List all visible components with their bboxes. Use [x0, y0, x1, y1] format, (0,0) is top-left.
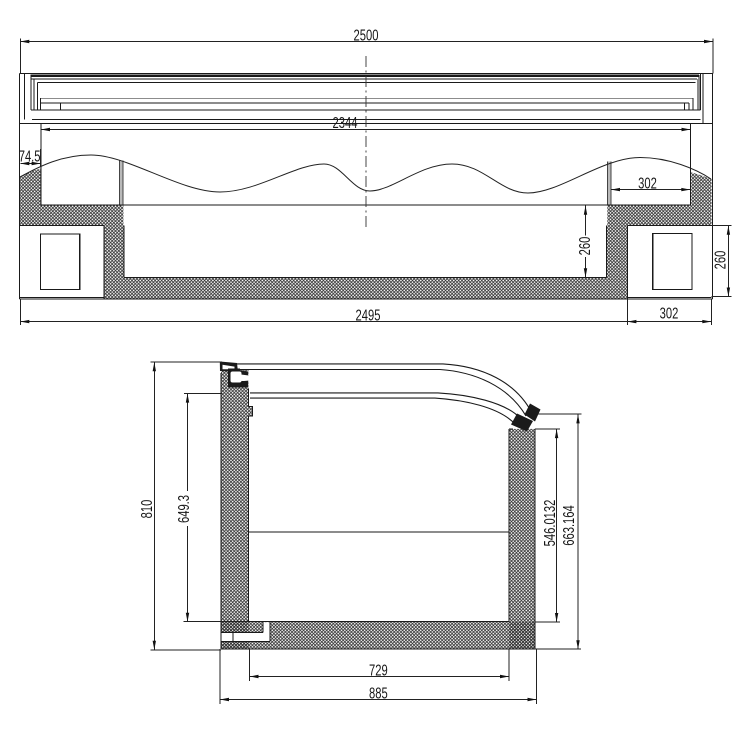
svg-text:663.164: 663.164 [559, 505, 578, 546]
svg-text:885: 885 [369, 683, 388, 702]
svg-text:2344: 2344 [333, 113, 358, 132]
svg-text:2500: 2500 [354, 26, 379, 45]
svg-text:546.0132: 546.0132 [540, 500, 559, 547]
svg-text:260: 260 [575, 236, 594, 255]
svg-text:729: 729 [369, 660, 388, 679]
svg-text:649.3: 649.3 [174, 495, 193, 523]
svg-text:302: 302 [638, 173, 657, 192]
svg-text:2495: 2495 [356, 305, 381, 324]
svg-text:74.5: 74.5 [19, 146, 41, 165]
svg-text:260: 260 [711, 250, 730, 269]
svg-text:810: 810 [137, 499, 156, 518]
svg-text:302: 302 [660, 303, 679, 322]
